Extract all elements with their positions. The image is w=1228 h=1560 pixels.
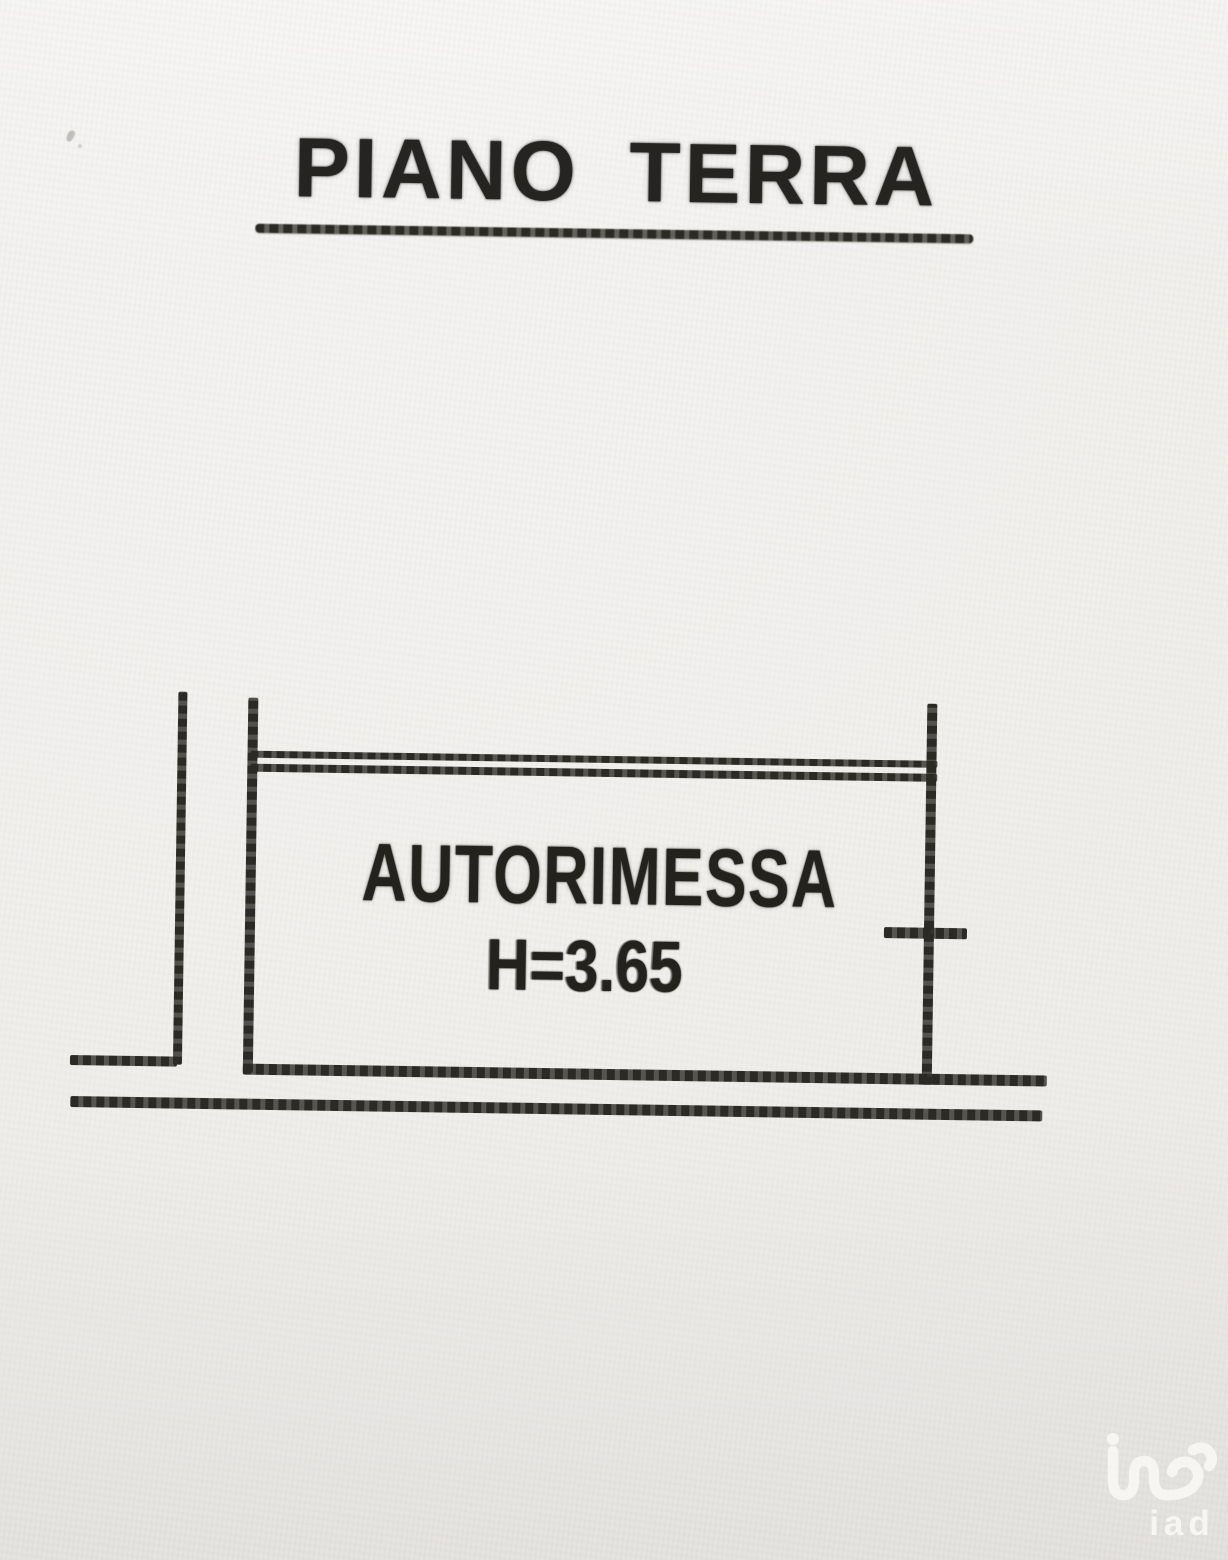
plan-drawing-area: PIANO TERRA AUTORIMESSA H=3.65 bbox=[0, 0, 1228, 1560]
room-name-label: AUTORIMESSA bbox=[333, 832, 866, 922]
left-wall-footing-line bbox=[70, 1055, 177, 1067]
paper-speck bbox=[78, 144, 82, 148]
left-boundary-wall-line bbox=[173, 692, 188, 1065]
ground-line bbox=[70, 1096, 1042, 1121]
garage-lintel-lower-line bbox=[250, 764, 937, 782]
iad-watermark-text: iad bbox=[1136, 1506, 1228, 1541]
iad-watermark: iad bbox=[1096, 1420, 1228, 1560]
room-height-label: H=3.65 bbox=[290, 926, 879, 1007]
title-underline bbox=[255, 224, 973, 244]
page-title: PIANO TERRA bbox=[2, 121, 1228, 223]
floor-plan-scan: PIANO TERRA AUTORIMESSA H=3.65 iad bbox=[0, 0, 1228, 1560]
height-reference-tick bbox=[884, 927, 967, 939]
